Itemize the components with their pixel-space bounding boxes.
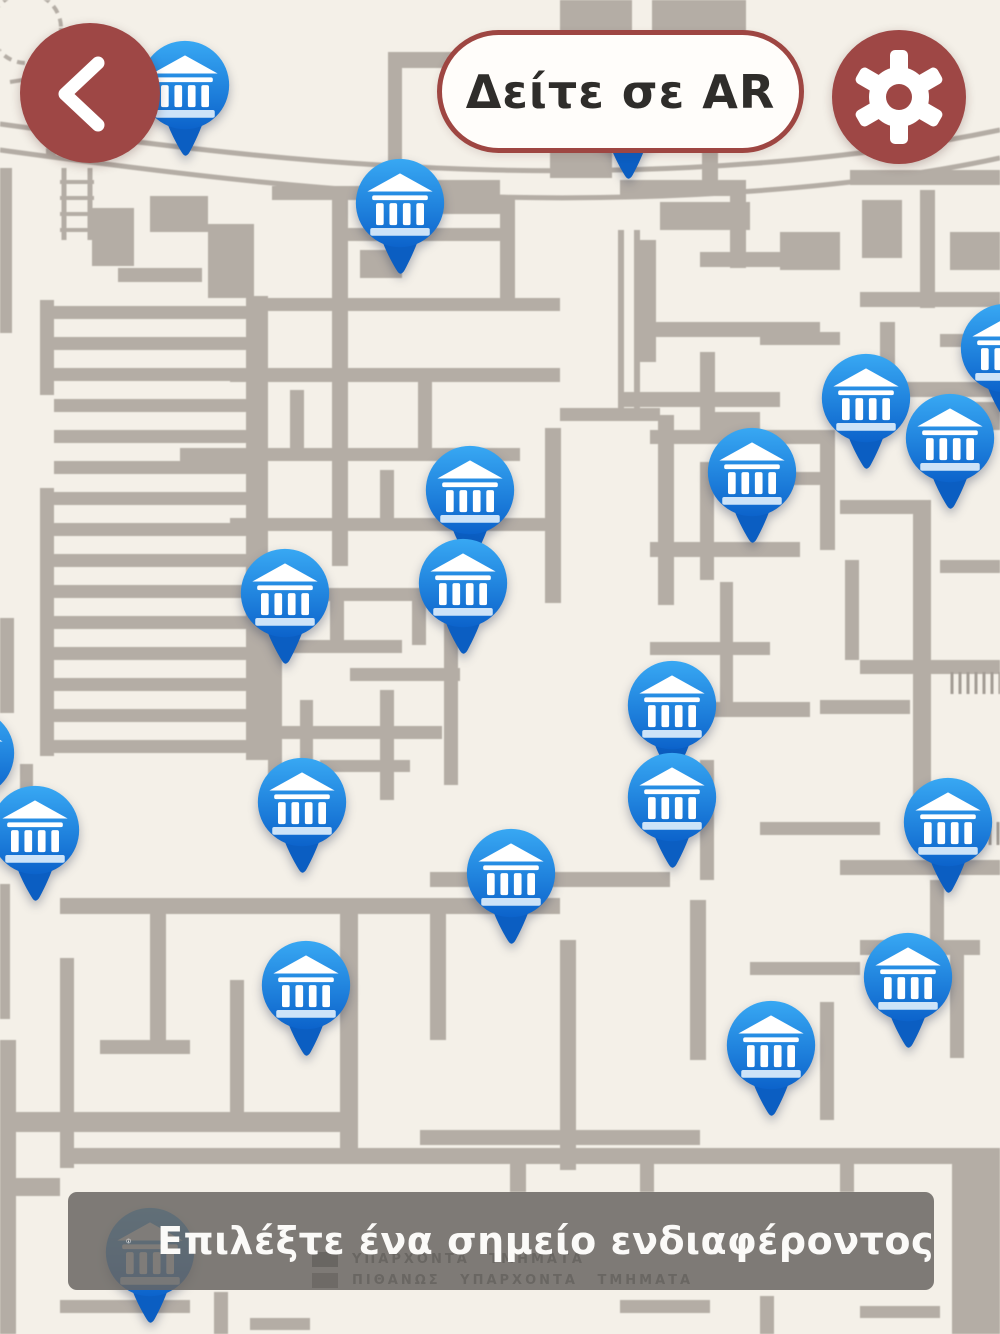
pin-shape (902, 392, 998, 511)
ar-button-label: Δείτε σε AR (466, 65, 776, 119)
hint-message: Επιλέξτε ένα σημείο ενδιαφέροντος (157, 1219, 934, 1263)
map-marker-poi[interactable] (900, 776, 996, 895)
gear-icon (832, 30, 966, 164)
pin-shape (0, 784, 83, 903)
map-marker-poi[interactable] (624, 751, 720, 870)
map-marker-poi[interactable] (723, 999, 819, 1118)
poi-markers-layer (0, 0, 1000, 1334)
map-marker-poi[interactable] (818, 352, 914, 471)
pin-shape (254, 756, 350, 875)
hint-banner: Επιλέξτε ένα σημείο ενδιαφέροντος (68, 1192, 934, 1290)
info-icon (126, 1206, 131, 1276)
map-marker-poi[interactable] (0, 784, 83, 903)
chevron-left-icon (20, 23, 160, 163)
pin-shape (237, 547, 333, 666)
map-marker-poi[interactable] (704, 426, 800, 545)
pin-shape (352, 157, 448, 276)
map-marker-poi[interactable] (463, 827, 559, 946)
map-marker-poi[interactable] (860, 931, 956, 1050)
pin-shape (900, 776, 996, 895)
pin-shape (258, 939, 354, 1058)
pin-shape (704, 426, 800, 545)
pin-shape (860, 931, 956, 1050)
map-marker-poi[interactable] (258, 939, 354, 1058)
pin-shape (463, 827, 559, 946)
map-marker-poi[interactable] (902, 392, 998, 511)
map-marker-poi[interactable] (415, 537, 511, 656)
map-marker-poi[interactable] (254, 756, 350, 875)
pin-shape (415, 537, 511, 656)
view-in-ar-button[interactable]: Δείτε σε AR (437, 30, 804, 153)
settings-button[interactable] (832, 30, 966, 164)
map-marker-poi[interactable] (237, 547, 333, 666)
pin-shape (818, 352, 914, 471)
map-marker-poi[interactable] (352, 157, 448, 276)
app-frame: ΥΠΑΡΧΟΝΤΑ ΤΜΗΜΑΤΑΠΙΘΑΝΩΣ ΥΠΑΡΧΟΝΤΑ ΤΜΗΜΑ… (0, 0, 1000, 1334)
pin-shape (723, 999, 819, 1118)
pin-shape (624, 751, 720, 870)
back-button[interactable] (20, 23, 160, 163)
